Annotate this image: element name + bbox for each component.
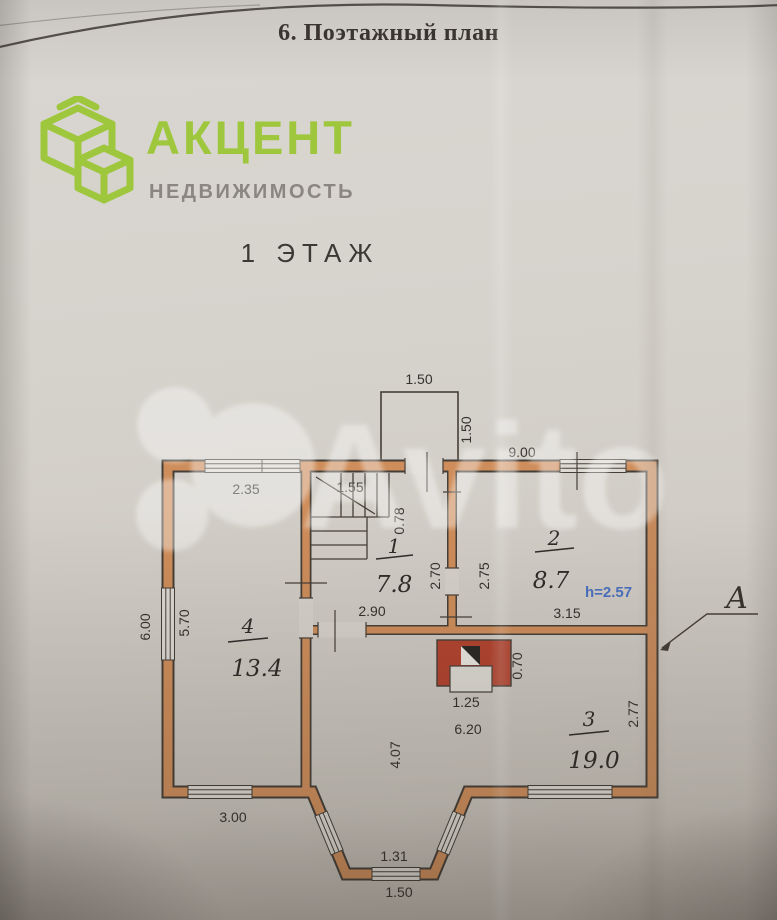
window-room3-bottom bbox=[528, 786, 612, 799]
dim-room4-left: 5.70 bbox=[176, 609, 192, 636]
document-photo: 6. Поэтажный план АКЦЕНТ НЕДВИЖИМОСТЬ 1 … bbox=[0, 0, 777, 920]
dim-room4-bottom: 3.00 bbox=[219, 809, 246, 825]
dim-bay-outer: 1.50 bbox=[385, 884, 412, 900]
window-room4-left bbox=[162, 588, 175, 660]
ceiling-height-note: h=2.57 bbox=[585, 584, 632, 601]
window-bay-right bbox=[437, 811, 465, 855]
room1-area: 7.8 bbox=[376, 572, 413, 598]
dim-stove-side: 0.70 bbox=[509, 652, 525, 679]
window-bay-left bbox=[315, 811, 343, 855]
room3-area: 19.0 bbox=[568, 748, 619, 774]
dim-hall-width: 6.20 bbox=[454, 721, 481, 737]
watermark: Avito bbox=[136, 387, 669, 560]
room3-number: 3 bbox=[583, 707, 596, 731]
stove bbox=[437, 640, 511, 692]
axis-label: А bbox=[724, 581, 749, 616]
dim-bay-inner: 1.31 bbox=[380, 848, 407, 864]
room4-number: 4 bbox=[241, 614, 255, 638]
window-bay-bottom bbox=[372, 868, 420, 881]
dim-room2-left: 2.75 bbox=[476, 562, 492, 589]
dim-room3-right: 2.77 bbox=[625, 700, 641, 727]
page-curl-line bbox=[0, 4, 777, 48]
dim-porch-top: 1.50 bbox=[405, 371, 432, 387]
axis-callout: А bbox=[660, 581, 758, 651]
dim-hall-left: 4.07 bbox=[387, 741, 403, 768]
window-room4-bottom bbox=[188, 786, 252, 799]
dim-room2-bottom: 3.15 bbox=[553, 605, 580, 621]
room2-area: 8.7 bbox=[533, 568, 570, 594]
room4-area: 13.4 bbox=[231, 656, 282, 682]
dim-room1-bottom: 2.90 bbox=[358, 603, 385, 619]
dim-left-total: 6.00 bbox=[137, 613, 153, 640]
floor-plan: А 1.50 1.50 9.00 2.35 1.55 0.78 2.70 2.7… bbox=[0, 0, 777, 920]
dim-room1-right: 2.70 bbox=[427, 562, 443, 589]
watermark-text: Avito bbox=[300, 392, 669, 560]
dim-stove-width: 1.25 bbox=[452, 694, 479, 710]
